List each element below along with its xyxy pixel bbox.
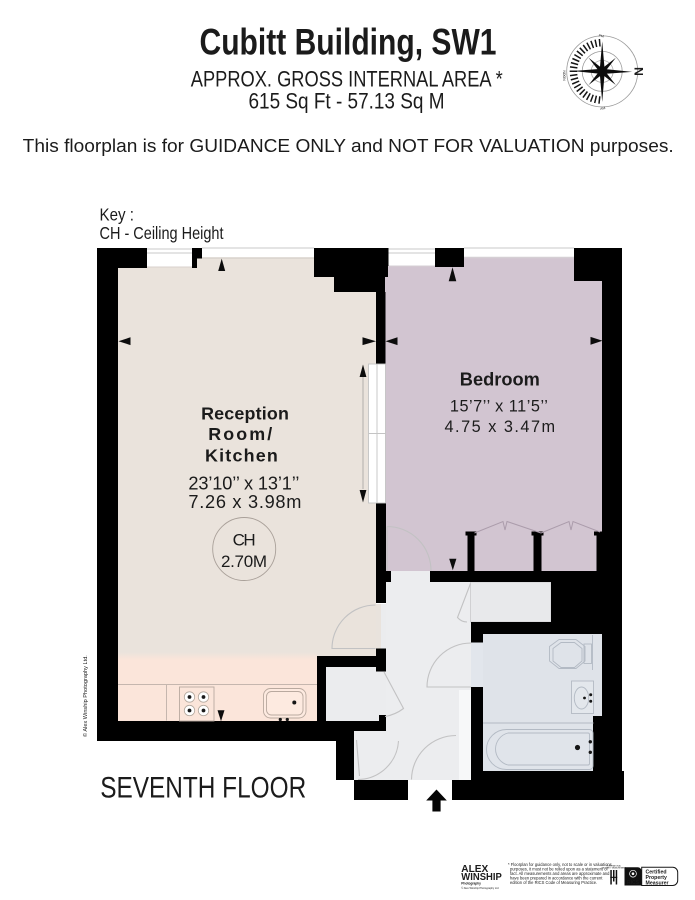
svg-text:PROPERTY MEASUREMENT: PROPERTY MEASUREMENT (602, 867, 627, 870)
svg-text:4.75 x 3.47m: 4.75 x 3.47m (445, 418, 556, 436)
svg-text:© Alex Winship Photography Ltd: © Alex Winship Photography Ltd (461, 886, 499, 890)
svg-text:23’10’’ x 13’1’’: 23’10’’ x 13’1’’ (188, 474, 299, 494)
svg-text:Photography: Photography (461, 882, 481, 886)
svg-text:CH: CH (233, 531, 256, 550)
svg-text:edition of the RICS Code of Me: edition of the RICS Code of Measuring Pr… (510, 880, 597, 885)
svg-text:Key :: Key : (100, 204, 134, 224)
svg-text:Bedroom: Bedroom (460, 369, 540, 390)
svg-text:N: N (631, 67, 645, 76)
svg-text:CH - Ceiling Height: CH - Ceiling Height (100, 223, 224, 243)
svg-text:7.26 x 3.98m: 7.26 x 3.98m (188, 492, 301, 512)
svg-text:15’7’’ x 11’5’’: 15’7’’ x 11’5’’ (450, 398, 548, 416)
svg-text:SEVENTH FLOOR: SEVENTH FLOOR (100, 771, 306, 804)
svg-text:© Alex Winship Photography Ltd: © Alex Winship Photography Ltd. (82, 655, 89, 737)
svg-text:This floorplan is for GUIDANCE: This floorplan is for GUIDANCE ONLY and … (23, 135, 674, 156)
svg-text:Kitchen: Kitchen (205, 445, 278, 465)
svg-text:615 Sq Ft - 57.13 Sq M: 615 Sq Ft - 57.13 Sq M (249, 89, 445, 114)
svg-text:NOON: NOON (563, 70, 567, 81)
svg-text:Cubitt Building, SW1: Cubitt Building, SW1 (200, 21, 497, 63)
svg-text:Room/: Room/ (208, 424, 272, 444)
svg-text:2.70M: 2.70M (221, 552, 267, 571)
svg-text:RICS: RICS (627, 880, 640, 886)
svg-text:Measurer: Measurer (646, 880, 669, 886)
svg-text:Reception: Reception (201, 403, 289, 423)
